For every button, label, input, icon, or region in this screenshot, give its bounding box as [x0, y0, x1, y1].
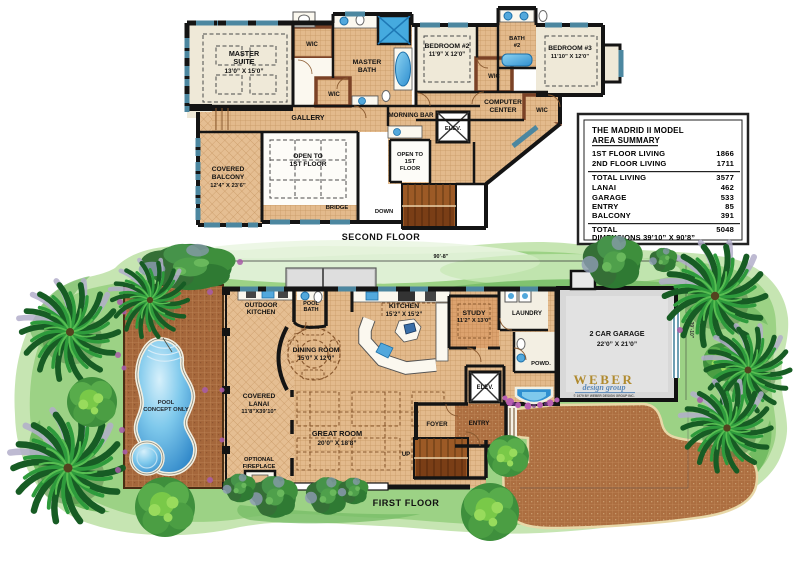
svg-text:COMPUTER: COMPUTER — [484, 99, 522, 106]
svg-text:DOWN: DOWN — [375, 209, 393, 215]
svg-text:UP: UP — [402, 452, 410, 458]
svg-text:GALLERY: GALLERY — [291, 115, 325, 122]
svg-text:1ST: 1ST — [405, 159, 416, 165]
svg-text:WIC: WIC — [536, 108, 548, 114]
svg-text:WIC: WIC — [488, 74, 500, 80]
svg-text:ELEV.: ELEV. — [477, 385, 494, 391]
svg-text:ENTRY: ENTRY — [469, 420, 491, 427]
svg-text:20’0” X 18’8”: 20’0” X 18’8” — [317, 440, 356, 447]
svg-text:BATH: BATH — [303, 307, 318, 313]
svg-text:391: 391 — [721, 211, 735, 220]
svg-text:85: 85 — [725, 202, 734, 211]
svg-text:OPTIONAL: OPTIONAL — [244, 457, 274, 463]
svg-text:OPEN TO: OPEN TO — [293, 153, 323, 160]
svg-text:11’10” X 12’0”: 11’10” X 12’0” — [551, 54, 589, 60]
svg-text:FLOOR: FLOOR — [400, 166, 421, 172]
svg-text:3577: 3577 — [716, 173, 734, 182]
svg-text:MASTER: MASTER — [353, 59, 382, 66]
svg-text:POWD.: POWD. — [531, 361, 551, 367]
svg-text:POOL: POOL — [158, 400, 175, 406]
svg-text:DINING ROOM: DINING ROOM — [293, 347, 340, 354]
svg-text:BALCONY: BALCONY — [592, 211, 631, 220]
svg-text:OPEN TO: OPEN TO — [397, 152, 423, 158]
svg-text:design group: design group — [583, 383, 626, 392]
svg-text:GARAGE: GARAGE — [592, 193, 627, 202]
svg-text:LANAI: LANAI — [592, 183, 616, 192]
svg-text:12’4” X 23’6”: 12’4” X 23’6” — [210, 183, 246, 189]
svg-text:TOTAL LIVING: TOTAL LIVING — [592, 173, 646, 182]
svg-text:1ST FLOOR: 1ST FLOOR — [290, 161, 327, 168]
svg-text:15’2” X 15’2”: 15’2” X 15’2” — [386, 312, 423, 318]
svg-text:BEDROOM #2: BEDROOM #2 — [425, 43, 470, 50]
svg-text:KITCHEN: KITCHEN — [389, 303, 419, 310]
svg-text:THE MADRID II MODEL: THE MADRID II MODEL — [592, 126, 684, 135]
svg-text:90’-8”: 90’-8” — [434, 254, 449, 260]
svg-text:2ND FLOOR LIVING: 2ND FLOOR LIVING — [592, 159, 667, 168]
svg-text:LANAI: LANAI — [249, 401, 269, 408]
svg-text:11’9” X 12’0”: 11’9” X 12’0” — [429, 52, 465, 58]
svg-text:FIREPLACE: FIREPLACE — [243, 464, 276, 470]
svg-text:ELEV.: ELEV. — [445, 126, 462, 132]
svg-text:© 1979 BY WEBER DESIGN GROUP I: © 1979 BY WEBER DESIGN GROUP INC. — [573, 394, 634, 398]
svg-text:CONCEPT ONLY: CONCEPT ONLY — [143, 407, 189, 413]
svg-text:BATH: BATH — [509, 36, 525, 42]
svg-text:533: 533 — [721, 193, 734, 202]
svg-text:WIC: WIC — [328, 92, 340, 98]
svg-text:11’8”X39’10”: 11’8”X39’10” — [241, 409, 276, 415]
svg-text:SECOND FLOOR: SECOND FLOOR — [342, 232, 421, 242]
svg-text:CENTER: CENTER — [489, 107, 516, 114]
svg-text:1866: 1866 — [716, 149, 734, 158]
svg-text:1711: 1711 — [717, 159, 735, 168]
svg-text:WIC: WIC — [306, 42, 318, 48]
svg-text:22’0” X 21’0”: 22’0” X 21’0” — [597, 341, 637, 348]
svg-text:#2: #2 — [514, 43, 520, 49]
svg-text:SUITE: SUITE — [233, 57, 254, 66]
svg-text:2 CAR GARAGE: 2 CAR GARAGE — [589, 329, 644, 338]
svg-text:BALCONY: BALCONY — [212, 174, 245, 181]
svg-text:KITCHEN: KITCHEN — [247, 309, 276, 316]
svg-text:BRIDGE: BRIDGE — [326, 205, 349, 211]
svg-text:COVERED: COVERED — [243, 393, 276, 400]
svg-text:FIRST FLOOR: FIRST FLOOR — [373, 498, 440, 508]
svg-text:BEDROOM #3: BEDROOM #3 — [548, 45, 592, 52]
svg-text:462: 462 — [721, 183, 734, 192]
svg-text:STUDY: STUDY — [462, 310, 486, 317]
svg-text:LAUNDRY: LAUNDRY — [512, 310, 543, 317]
svg-text:AREA SUMMARY: AREA SUMMARY — [592, 136, 660, 145]
svg-text:MORNING BAR: MORNING BAR — [388, 112, 434, 119]
svg-text:OUTDOOR: OUTDOOR — [245, 302, 278, 309]
svg-text:ENTRY: ENTRY — [592, 202, 618, 211]
svg-text:COVERED: COVERED — [212, 166, 245, 173]
svg-text:13’0” X 15’0”: 13’0” X 15’0” — [224, 68, 263, 75]
svg-text:11’2” X 13’0”: 11’2” X 13’0” — [457, 318, 491, 324]
svg-text:FOYER: FOYER — [426, 421, 448, 428]
svg-text:BATH: BATH — [358, 67, 376, 74]
svg-text:15’0” X 12’0”: 15’0” X 12’0” — [298, 356, 335, 362]
svg-text:GREAT ROOM: GREAT ROOM — [312, 429, 362, 438]
svg-text:5048: 5048 — [716, 225, 734, 234]
svg-text:1ST FLOOR LIVING: 1ST FLOOR LIVING — [592, 149, 665, 158]
